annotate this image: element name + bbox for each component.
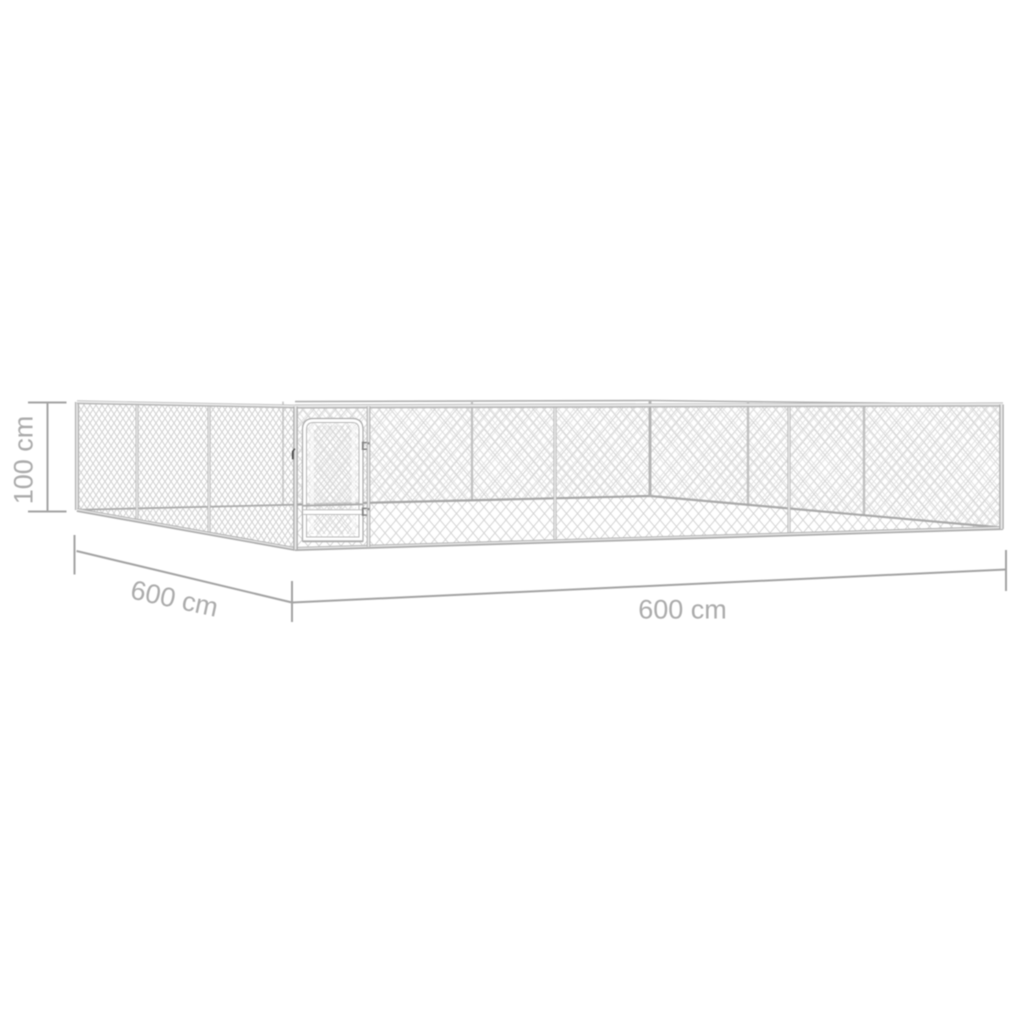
svg-text:100 cm: 100 cm — [9, 416, 39, 505]
svg-text:600 cm: 600 cm — [638, 595, 727, 625]
